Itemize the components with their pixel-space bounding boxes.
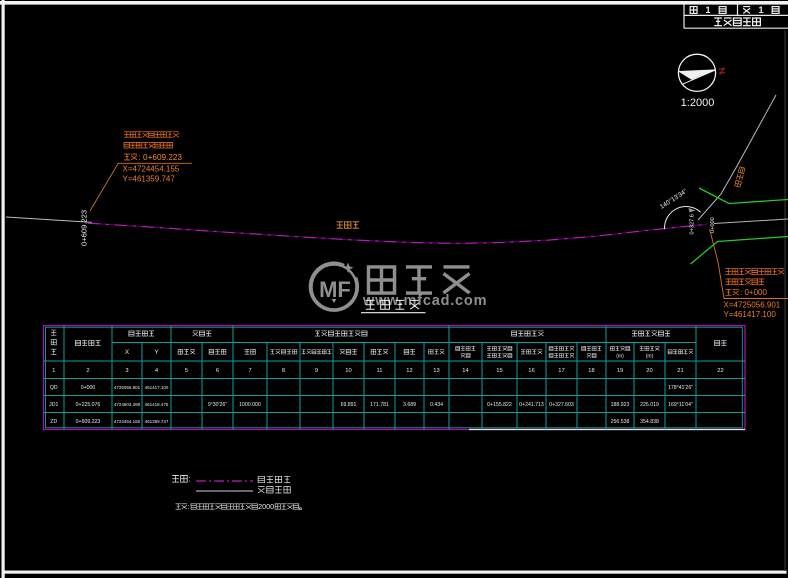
svg-text:MF: MF [319,277,351,302]
svg-text:0+225.076: 0+225.076 [76,402,101,408]
svg-text:1:2000: 1:2000 [681,97,715,109]
svg-text:QD: QD [50,385,58,391]
svg-text:12: 12 [406,368,412,374]
svg-text:0+609.223: 0+609.223 [80,210,89,246]
svg-text::: : [189,475,191,484]
svg-text:1: 1 [758,5,763,15]
svg-text:0+155.822: 0+155.822 [487,402,512,408]
svg-text:0+241.713: 0+241.713 [519,402,544,408]
svg-text:0+327.6: 0+327.6 [690,214,696,234]
svg-text:JD1: JD1 [49,402,58,408]
svg-text:8: 8 [282,368,285,374]
svg-text:4725056.901: 4725056.901 [114,385,141,390]
svg-text:X=4725056.901: X=4725056.901 [724,300,781,309]
svg-text:Y: Y [154,349,159,356]
svg-text:17: 17 [558,368,564,374]
svg-text:3: 3 [125,368,128,374]
svg-text:22: 22 [717,368,723,374]
svg-text:Y=461359.747: Y=461359.747 [123,174,176,183]
svg-text:2: 2 [86,368,89,374]
svg-text:188.923: 188.923 [611,402,630,408]
svg-text:4724603.499: 4724603.499 [114,402,141,407]
svg-text:X: X [125,349,130,356]
svg-text:1: 1 [705,5,710,15]
svg-text:256.538: 256.538 [611,419,630,425]
svg-text:16: 16 [528,368,534,374]
svg-text:X=4724454.155: X=4724454.155 [123,164,180,173]
svg-text:0.434: 0.434 [430,402,443,408]
svg-text:4724454.155: 4724454.155 [114,419,141,424]
svg-text:171.781: 171.781 [370,402,389,408]
svg-text:ZD: ZD [50,419,57,425]
svg-text:9: 9 [315,368,318,374]
svg-text:461417.100: 461417.100 [145,385,169,390]
svg-text:11: 11 [376,368,382,374]
svg-text:10: 10 [345,368,351,374]
svg-text:0+000: 0+000 [81,385,96,391]
svg-text:14: 14 [462,368,469,374]
svg-text:(m): (m) [616,354,624,360]
svg-text:5: 5 [185,368,188,374]
svg-text:461359.747: 461359.747 [145,419,169,424]
svg-text:15: 15 [496,368,502,374]
svg-text:461418.475: 461418.475 [145,402,169,407]
svg-text:0+327.603: 0+327.603 [549,402,574,408]
svg-text:3.689: 3.689 [403,402,416,408]
svg-text:354.838: 354.838 [640,419,659,425]
svg-text:0+000: 0+000 [710,217,716,233]
svg-text:Y=461417.100: Y=461417.100 [724,310,777,319]
svg-text:21: 21 [677,368,683,374]
svg-text::: : [188,504,190,511]
svg-text:0+609.223: 0+609.223 [76,419,101,425]
svg-text:69.891: 69.891 [341,402,357,408]
svg-text:13: 13 [433,368,439,374]
svg-text:(m): (m) [646,354,654,360]
svg-text:225.019: 225.019 [640,402,659,408]
svg-text:2000: 2000 [258,502,274,511]
svg-text:20: 20 [646,368,652,374]
svg-text:7: 7 [248,368,251,374]
svg-text:6: 6 [216,368,219,374]
svg-text:169°11'04": 169°11'04" [668,402,693,408]
svg-text:1000.000: 1000.000 [239,402,261,408]
svg-text:178°41'26": 178°41'26" [668,385,693,391]
svg-text:19: 19 [617,368,623,374]
svg-text:: 0+609.223: : 0+609.223 [139,153,183,162]
svg-text:: 0+000: : 0+000 [740,288,767,297]
svg-text:18: 18 [588,368,594,374]
svg-text:1: 1 [52,368,55,374]
svg-text:9°30'26": 9°30'26" [208,402,227,408]
